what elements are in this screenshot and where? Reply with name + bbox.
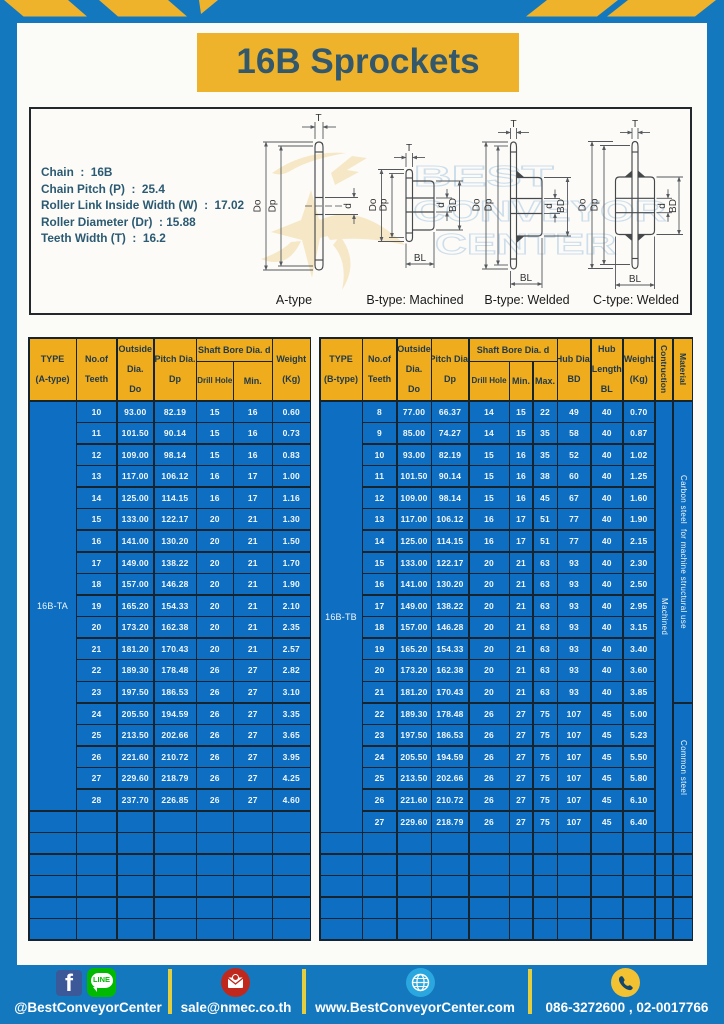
svg-text:Dp: Dp: [590, 198, 601, 211]
svg-text:B-type: Welded: B-type: Welded: [484, 293, 569, 307]
svg-text:C-type: Welded: C-type: Welded: [593, 293, 679, 307]
svg-text:d: d: [343, 203, 354, 209]
svg-text:Dp: Dp: [379, 198, 390, 211]
svg-text:Do: Do: [578, 198, 589, 211]
svg-text:A-type: A-type: [276, 293, 312, 307]
svg-text:Do: Do: [472, 198, 483, 211]
svg-text:Do: Do: [253, 199, 264, 212]
svg-text:Do: Do: [368, 198, 379, 211]
svg-text:T: T: [511, 119, 517, 130]
svg-text:BD: BD: [668, 199, 679, 213]
svg-text:BD: BD: [556, 199, 567, 213]
svg-text:Dp: Dp: [484, 198, 495, 211]
svg-text:BL: BL: [414, 253, 427, 264]
svg-text:d: d: [544, 203, 555, 209]
svg-text:BL: BL: [629, 274, 642, 285]
svg-text:T: T: [632, 119, 638, 130]
svg-text:BD: BD: [448, 198, 459, 212]
svg-text:d: d: [436, 202, 447, 208]
svg-text:B-type: Machined: B-type: Machined: [366, 293, 463, 307]
svg-text:BL: BL: [520, 273, 533, 284]
svg-text:Dp: Dp: [268, 199, 279, 212]
svg-text:d: d: [657, 203, 668, 209]
svg-text:T: T: [406, 143, 412, 154]
svg-text:T: T: [316, 113, 322, 124]
